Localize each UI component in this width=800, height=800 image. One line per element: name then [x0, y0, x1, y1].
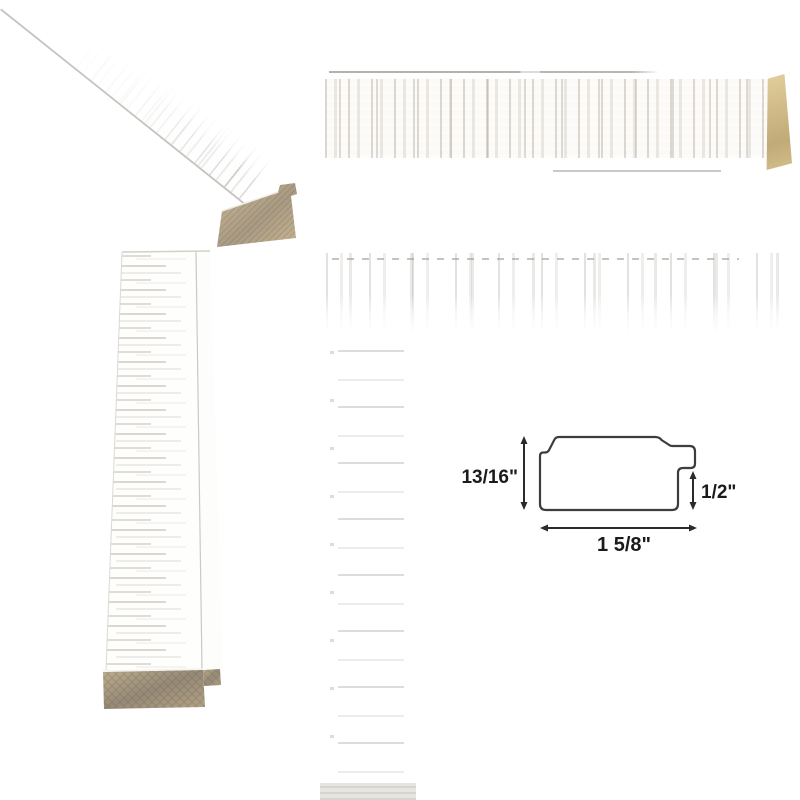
- rabbet-dimension-label: 1/2": [701, 482, 736, 503]
- strip-bottom-edge-line: [553, 170, 721, 172]
- product-image-canvas: 13/16" 1/2" 1 5/8": [0, 0, 800, 800]
- raw-wood-miter-end: [765, 74, 792, 170]
- moulding-diagonal-view: [0, 0, 279, 205]
- faded-texture-bottom-patch: [320, 783, 416, 800]
- moulding-vertical-view: [96, 238, 236, 718]
- width-dimension-label: 1 5/8": [597, 534, 651, 556]
- profile-dimension-diagram: 13/16" 1/2" 1 5/8": [440, 423, 760, 563]
- height-dimension-label: 13/16": [461, 467, 518, 488]
- strip-top-cut-line: [122, 251, 210, 252]
- rabbet-dimension-arrow-icon: [690, 471, 697, 510]
- wood-grain-hatch: [103, 670, 205, 709]
- wood-grain-hatch: [203, 669, 221, 686]
- width-dimension-arrow-icon: [540, 525, 697, 532]
- faded-texture-horizontal-band: [326, 253, 788, 333]
- height-dimension-arrow-icon: [521, 436, 528, 510]
- moulding-profile-outline: [540, 437, 695, 510]
- whitewash-texture-band: [325, 79, 767, 158]
- moulding-horizontal-view: [325, 71, 791, 172]
- faded-texture-vertical-band: [326, 330, 416, 800]
- strip-top-edge-line: [329, 71, 659, 73]
- whitewash-streaks: [106, 252, 202, 670]
